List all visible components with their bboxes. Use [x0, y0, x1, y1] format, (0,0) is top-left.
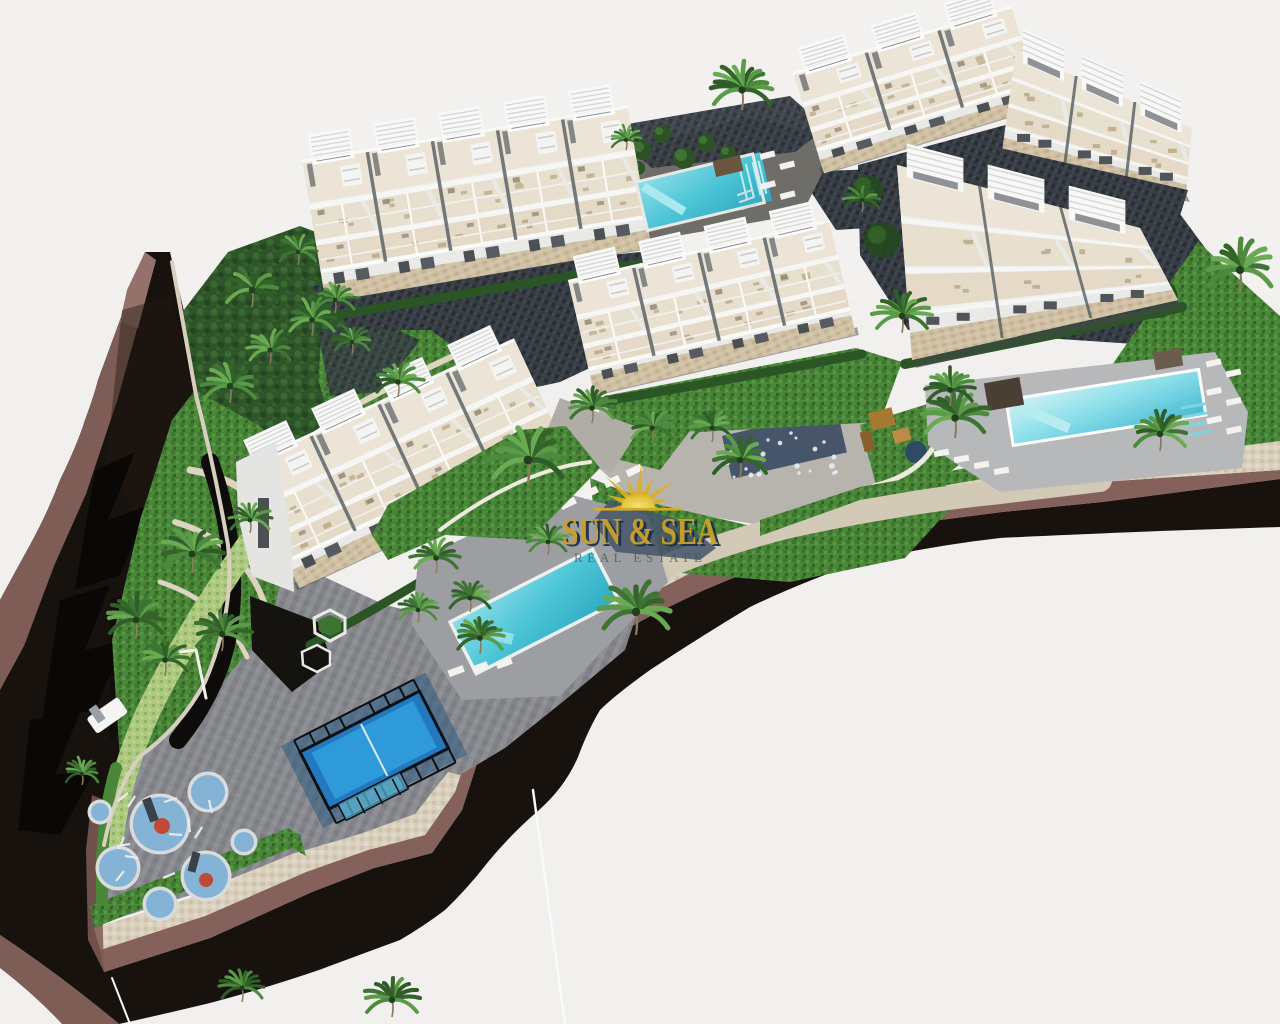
- svg-text:REAL ESTATE: REAL ESTATE: [574, 550, 702, 565]
- svg-text:SUN & SEA: SUN & SEA: [562, 511, 718, 553]
